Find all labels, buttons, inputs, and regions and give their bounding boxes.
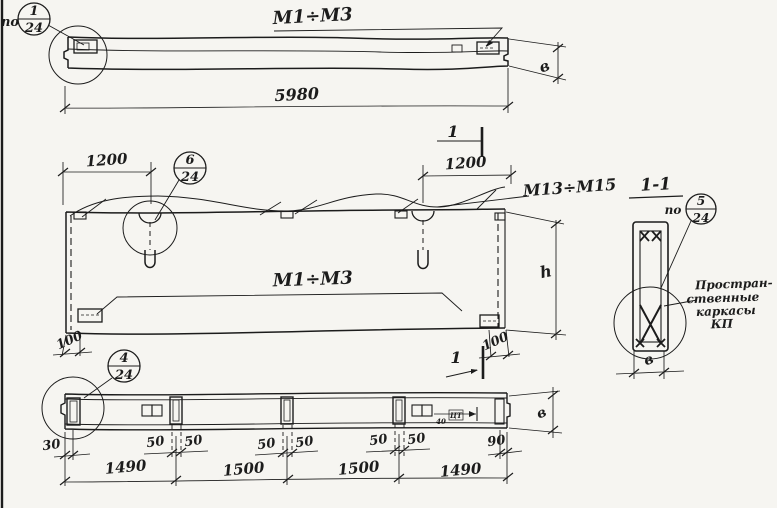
pair2-right-dim: 50 <box>295 434 315 451</box>
top-left-embed-plate <box>74 40 97 53</box>
balloon-detail-5-24: по 5 24 <box>665 194 716 225</box>
po-label: по <box>665 203 682 217</box>
edge-clip <box>395 211 407 218</box>
loop-offset-dim-left: 1200 <box>85 150 128 171</box>
loop-offset-dim-right: 1200 <box>444 153 487 174</box>
pair1-left-dim: 50 <box>146 434 166 451</box>
edge-clip <box>495 213 505 220</box>
spatial-frames-note: Простран- ственные каркасы КП <box>686 276 773 332</box>
section-view-1-1: 1-1 по 5 24 Простран- ственные каркасы К… <box>614 174 773 379</box>
balloon-detail-1-24: по 1 24 <box>1 3 50 36</box>
balloon-numerator: 5 <box>697 194 705 208</box>
mini-dim-arrowhead <box>469 411 476 417</box>
span-dim-2: 1500 <box>222 458 266 480</box>
balloon-numerator: 1 <box>29 4 38 19</box>
bottom-width-dim: в <box>535 404 549 422</box>
loop-slot <box>281 397 293 424</box>
embed-offset-dim: 40 <box>436 417 446 426</box>
top-marks-label: М1÷М3 <box>271 4 353 29</box>
section-arrowhead <box>471 369 478 374</box>
embed-plate <box>422 405 432 416</box>
loop-slot <box>67 398 80 425</box>
center-gravity-mark: ЦТ <box>449 411 463 420</box>
section-cut-label-top: 1 <box>447 122 458 141</box>
note-line-4: КП <box>709 317 733 332</box>
section-title: 1-1 <box>640 174 672 196</box>
detail-circle-loop <box>123 201 177 255</box>
balloon-denominator: 24 <box>114 368 133 383</box>
top-view: по 1 24 М1÷М3 в 5980 1 <box>1 3 566 157</box>
balloon-denominator: 24 <box>692 211 710 225</box>
corner-dim-right: 100 <box>480 329 511 354</box>
embed-plate <box>412 405 422 416</box>
embed-plate <box>152 405 162 416</box>
detail-circle-top-left <box>49 26 107 84</box>
pair2-left-dim: 50 <box>257 436 277 453</box>
balloon-numerator: 6 <box>185 153 194 168</box>
pair3-left-dim: 50 <box>369 432 389 449</box>
middle-marks-label: М1÷М3 <box>271 268 353 292</box>
balloon-numerator: 4 <box>119 351 128 366</box>
pair1-right-dim: 50 <box>184 433 204 450</box>
top-small-embed-mark <box>452 45 462 52</box>
edge-dim-left: 30 <box>42 437 62 454</box>
balloon-detail-6-24: 6 24 <box>174 152 206 185</box>
loop-slot <box>170 397 182 424</box>
corner-embed-left <box>78 309 102 322</box>
po-label: по <box>1 15 19 30</box>
loop-slot <box>393 397 405 424</box>
edge-dim-right: 90 <box>487 433 507 450</box>
marks-label-right: М13÷М15 <box>521 175 616 201</box>
balloon-denominator: 24 <box>24 21 43 36</box>
section-width-dim: в <box>642 351 656 369</box>
rebar-cross-marks-top <box>640 231 661 241</box>
section-cut-label-bottom: 1 <box>450 348 461 367</box>
span-dim-3: 1500 <box>337 457 381 479</box>
height-dim: h <box>538 261 553 282</box>
pair3-right-dim: 50 <box>407 431 427 448</box>
middle-view: 6 24 1200 1200 М13÷М15 М1÷М3 100 100 h 1 <box>53 150 617 379</box>
drawing-canvas: по 1 24 М1÷М3 в 5980 1 <box>0 0 777 508</box>
balloon-detail-4-24: 4 24 <box>108 350 140 383</box>
span-dim-4: 1490 <box>439 459 483 481</box>
span-dim-1: 1490 <box>104 456 148 478</box>
embed-plate <box>142 405 152 416</box>
section-linework <box>614 196 697 379</box>
section-outline <box>633 222 668 351</box>
hidden-loop <box>145 250 428 269</box>
leader-arrowhead <box>486 40 493 47</box>
balloon-denominator: 24 <box>180 170 199 185</box>
cage-diagonal-brace <box>640 305 661 344</box>
scanned-drawing-sheet: по 1 24 М1÷М3 в 5980 1 <box>0 0 777 508</box>
right-end-recess <box>495 399 504 424</box>
overall-length-dim: 5980 <box>274 84 319 105</box>
